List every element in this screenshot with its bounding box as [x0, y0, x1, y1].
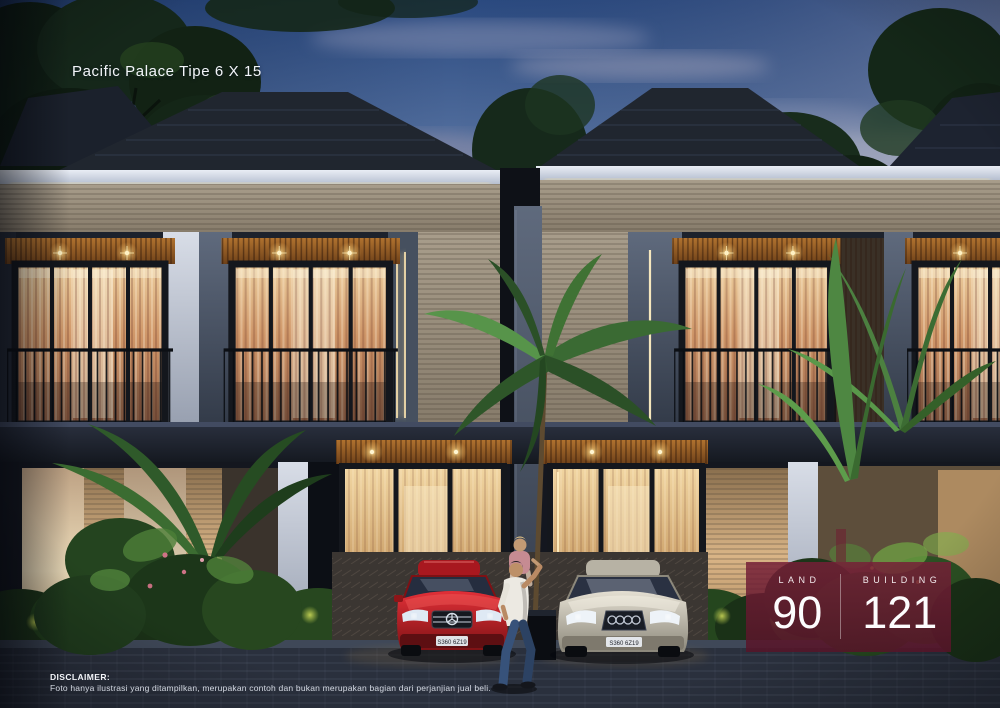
stat-building: BUILDING 121	[849, 562, 952, 652]
stat-building-label: BUILDING	[858, 575, 941, 585]
edge-shade	[0, 0, 70, 708]
stats-panel: LAND 90 BUILDING 121	[746, 562, 951, 652]
stats-panel-accent	[836, 529, 846, 562]
stat-land-value: 90	[772, 590, 822, 635]
disclaimer-heading: DISCLAIMER:	[50, 672, 491, 683]
stats-divider	[840, 574, 841, 639]
disclaimer: DISCLAIMER: Foto hanya ilustrasi yang di…	[50, 672, 491, 695]
stat-land: LAND 90	[746, 562, 849, 652]
stat-building-value: 121	[862, 590, 937, 635]
marketing-image: S360 6Z19 S360 6Z19	[0, 0, 1000, 708]
disclaimer-body: Foto hanya ilustrasi yang ditampilkan, m…	[50, 683, 491, 694]
stat-land-label: LAND	[774, 575, 821, 585]
page-title: Pacific Palace Tipe 6 X 15	[72, 63, 262, 80]
